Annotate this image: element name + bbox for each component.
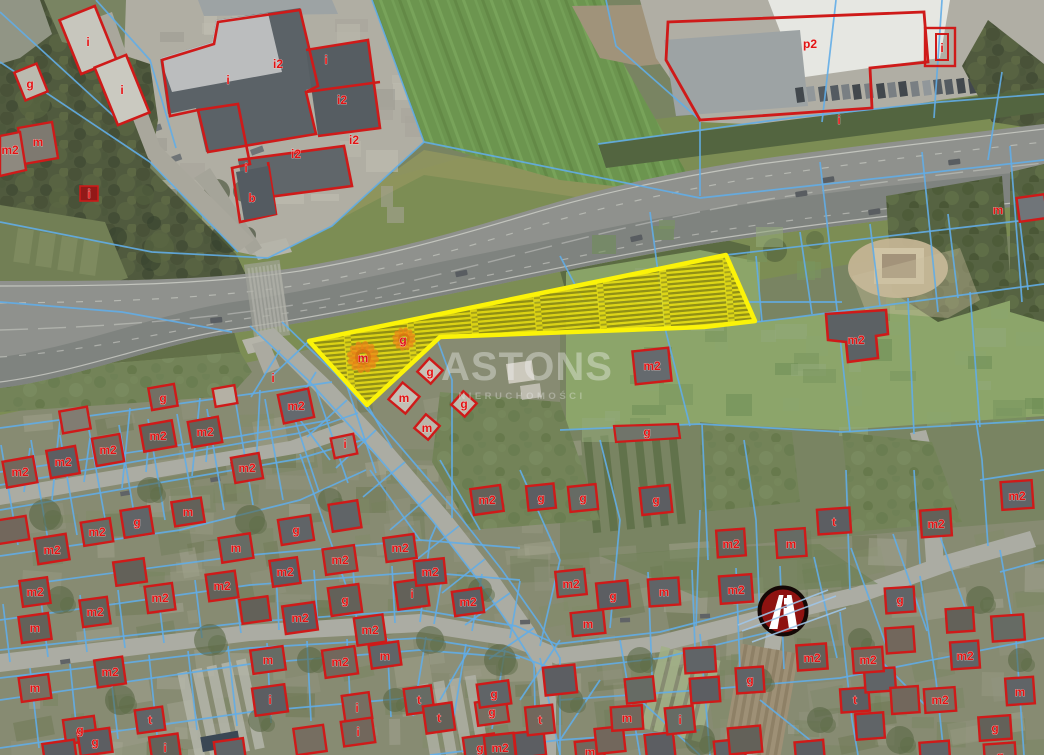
svg-text:m: m — [263, 653, 274, 667]
svg-text:i: i — [163, 741, 166, 755]
svg-text:m: m — [659, 585, 670, 599]
svg-text:m2: m2 — [956, 649, 974, 663]
svg-text:g: g — [399, 333, 406, 347]
svg-text:m2: m2 — [722, 537, 740, 551]
svg-text:i: i — [120, 83, 123, 97]
svg-text:m2: m2 — [391, 541, 409, 555]
svg-text:t: t — [417, 693, 421, 707]
svg-text:g: g — [996, 749, 1003, 755]
svg-text:i2: i2 — [273, 57, 283, 71]
svg-text:g: g — [133, 515, 140, 529]
svg-text:g: g — [490, 687, 497, 701]
svg-text:m2: m2 — [847, 333, 865, 347]
svg-text:i: i — [356, 725, 359, 739]
svg-text:m: m — [399, 391, 410, 405]
svg-text:g: g — [643, 425, 650, 439]
svg-text:m2: m2 — [276, 565, 294, 579]
svg-text:g: g — [91, 735, 98, 749]
svg-text:i: i — [226, 73, 229, 87]
svg-text:m2: m2 — [331, 655, 349, 669]
svg-text:m2: m2 — [859, 653, 877, 667]
svg-text:g: g — [537, 491, 544, 505]
svg-text:m2: m2 — [421, 565, 439, 579]
svg-text:i: i — [410, 587, 413, 601]
svg-text:m2: m2 — [11, 465, 29, 479]
svg-text:g: g — [488, 705, 495, 719]
svg-text:m2: m2 — [1008, 489, 1026, 503]
svg-text:g: g — [26, 77, 33, 91]
svg-text:i: i — [837, 113, 840, 127]
svg-text:g: g — [579, 491, 586, 505]
svg-text:m2: m2 — [88, 525, 106, 539]
svg-text:m2: m2 — [331, 553, 349, 567]
svg-text:m2: m2 — [491, 741, 509, 755]
svg-text:m2: m2 — [86, 605, 104, 619]
svg-text:g: g — [426, 365, 433, 379]
svg-text:i: i — [940, 41, 943, 55]
svg-text:i: i — [86, 35, 89, 49]
svg-text:g: g — [652, 493, 659, 507]
svg-text:m: m — [358, 351, 369, 365]
svg-text:p2: p2 — [803, 37, 817, 51]
svg-text:i: i — [678, 713, 681, 727]
svg-text:m: m — [30, 621, 41, 635]
svg-text:t: t — [538, 713, 542, 727]
svg-text:g: g — [341, 593, 348, 607]
svg-text:g: g — [292, 523, 299, 537]
svg-text:m: m — [585, 745, 596, 755]
svg-text:m2: m2 — [478, 493, 496, 507]
svg-text:t: t — [853, 693, 857, 707]
svg-text:m2: m2 — [927, 517, 945, 531]
svg-text:g: g — [476, 741, 483, 755]
svg-text:g: g — [746, 673, 753, 687]
svg-text:m2: m2 — [213, 579, 231, 593]
svg-text:NIERUCHOMOŚCI: NIERUCHOMOŚCI — [458, 390, 585, 402]
svg-text:m: m — [786, 537, 797, 551]
svg-text:g: g — [460, 397, 467, 411]
svg-text:m: m — [33, 135, 44, 149]
svg-text:t: t — [832, 515, 836, 529]
svg-text:m2: m2 — [287, 399, 305, 413]
svg-text:m2: m2 — [101, 665, 119, 679]
svg-text:t: t — [437, 711, 441, 725]
svg-text:i: i — [355, 701, 358, 715]
svg-text:m2: m2 — [727, 583, 745, 597]
svg-text:m2: m2 — [43, 543, 61, 557]
svg-text:m2: m2 — [196, 425, 214, 439]
svg-text:i: i — [324, 53, 327, 67]
svg-text:i: i — [343, 437, 346, 451]
svg-text:m2: m2 — [149, 429, 167, 443]
svg-text:m: m — [583, 617, 594, 631]
svg-text:m2: m2 — [562, 577, 580, 591]
svg-text:m2: m2 — [238, 461, 256, 475]
svg-text:i: i — [244, 161, 247, 175]
svg-text:m2: m2 — [803, 651, 821, 665]
svg-text:i: i — [271, 371, 274, 385]
svg-text:m: m — [183, 505, 194, 519]
svg-text:m2: m2 — [459, 595, 477, 609]
svg-text:i: i — [268, 693, 271, 707]
svg-text:m2: m2 — [361, 623, 379, 637]
svg-text:g: g — [896, 593, 903, 607]
svg-text:m2: m2 — [26, 585, 44, 599]
svg-text:g: g — [609, 589, 616, 603]
svg-text:m2: m2 — [99, 443, 117, 457]
svg-text:m: m — [993, 203, 1004, 217]
svg-text:i: i — [87, 187, 90, 201]
svg-text:m2: m2 — [291, 611, 309, 625]
svg-text:m2: m2 — [931, 693, 949, 707]
svg-text:m: m — [422, 421, 433, 435]
svg-text:m2: m2 — [1, 143, 19, 157]
svg-text:m2: m2 — [151, 591, 169, 605]
svg-text:i2: i2 — [349, 133, 359, 147]
svg-text:m: m — [380, 649, 391, 663]
svg-text:m: m — [622, 711, 633, 725]
svg-text:i2: i2 — [337, 93, 347, 107]
svg-text:m: m — [1015, 685, 1026, 699]
svg-text:t: t — [148, 713, 152, 727]
svg-text:g: g — [991, 721, 998, 735]
svg-text:m2: m2 — [54, 455, 72, 469]
svg-text:g: g — [159, 391, 166, 405]
svg-text:m: m — [231, 541, 242, 555]
svg-text:m2: m2 — [643, 359, 661, 373]
svg-text:g: g — [76, 723, 83, 737]
svg-text:ASTONS: ASTONS — [441, 345, 613, 389]
svg-text:b: b — [248, 191, 255, 205]
svg-text:m: m — [30, 681, 41, 695]
svg-text:i2: i2 — [291, 147, 301, 161]
